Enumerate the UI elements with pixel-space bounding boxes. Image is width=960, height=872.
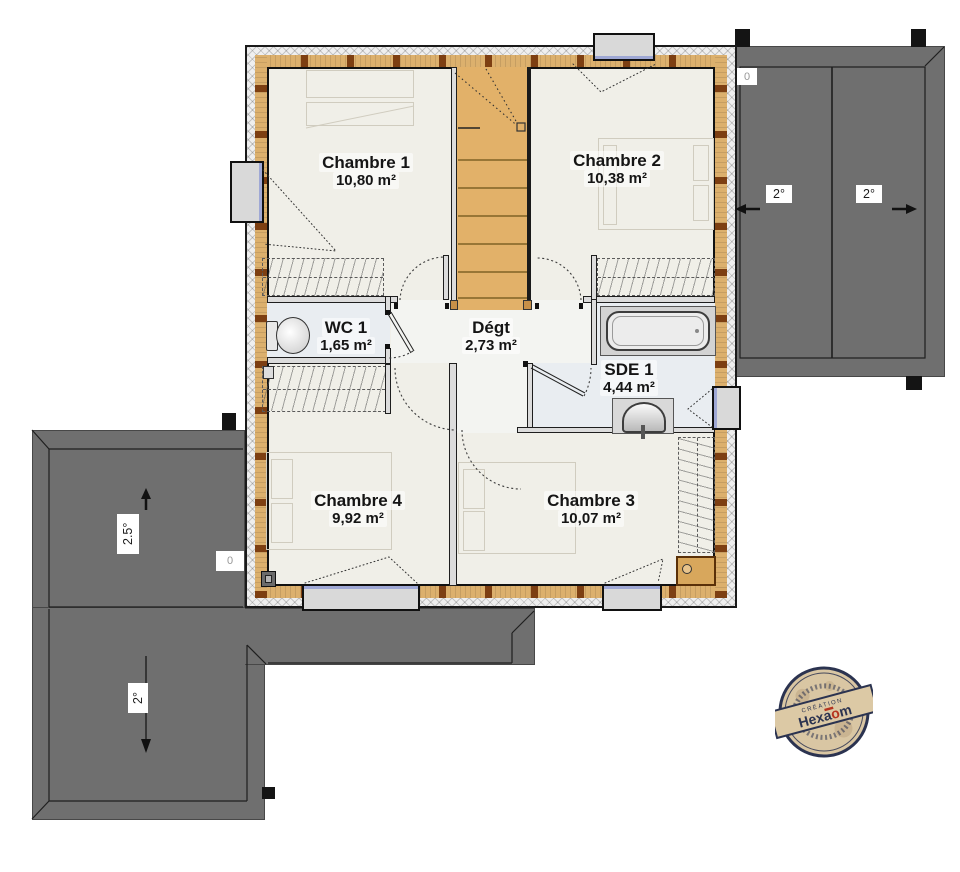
staircase (457, 67, 527, 310)
roof-slope-label: 2° (128, 683, 148, 713)
partition-wall (527, 363, 533, 431)
wall-wood-band-top (255, 55, 727, 67)
door-hinge (385, 310, 390, 315)
chimney-icon (906, 376, 922, 390)
floor-plan-canvas: 2° 2° 2.5° 2° 0 0 (0, 0, 960, 872)
partition-wall (591, 296, 597, 365)
closet-chambre2 (597, 258, 715, 296)
window (302, 584, 420, 611)
partition-wall (385, 364, 391, 414)
window (230, 161, 264, 223)
stair-post (523, 300, 532, 310)
roof-slope-label: 2° (766, 185, 792, 203)
flue-box (676, 556, 716, 586)
roof-left-lower (32, 607, 265, 820)
room-label-sde1: SDE 14,44 m² (579, 358, 679, 398)
room-label-chambre3: Chambre 310,07 m² (511, 486, 671, 532)
roof-slope-label: 2° (856, 185, 882, 203)
door-hinge (445, 303, 449, 309)
window (712, 386, 741, 430)
stair-post (450, 300, 458, 310)
partition-wall (267, 357, 391, 364)
partition-wall (591, 255, 597, 300)
partition-wall (583, 296, 715, 303)
wall-fixture-icon (263, 366, 274, 379)
chimney-icon (262, 787, 275, 799)
chimney-icon (735, 29, 750, 47)
chimney-icon (222, 413, 236, 430)
roof-top-right (735, 46, 945, 377)
degagement-floor (457, 363, 527, 433)
roof-slope-label: 2.5° (117, 514, 139, 554)
partition-wall (443, 255, 449, 300)
room-label-chambre1: Chambre 110,80 m² (286, 148, 446, 194)
roof-band-bottom (245, 608, 535, 665)
door-hinge (535, 303, 539, 309)
room-label-wc1: WC 11,65 m² (296, 316, 396, 356)
door-hinge (394, 303, 398, 309)
door-hinge (523, 361, 528, 367)
shelf-outline (306, 102, 414, 126)
shelf-outline (306, 70, 414, 98)
closet-chambre4 (262, 366, 386, 412)
room-label-chambre4: Chambre 49,92 m² (278, 486, 438, 532)
partition-wall (267, 296, 398, 303)
closet-chambre3 (678, 437, 715, 553)
bathtub-icon (600, 306, 716, 356)
builder-stamp: CRÉATION Hexaom (775, 663, 873, 761)
door-hinge (579, 303, 583, 309)
room-label-chambre2: Chambre 210,38 m² (537, 146, 697, 192)
sink-icon (612, 398, 674, 434)
window (593, 33, 655, 61)
level-marker: 0 (216, 551, 244, 571)
closet-chambre1 (262, 258, 384, 296)
partition-wall (449, 363, 457, 586)
level-marker: 0 (737, 68, 757, 85)
room-label-degagement: Dégt2,73 m² (441, 316, 541, 356)
wall-wood-band-right (715, 55, 727, 598)
window (602, 584, 662, 611)
duct-box (261, 571, 276, 587)
chimney-icon (911, 29, 926, 47)
stair-wall-left (451, 67, 457, 310)
stair-wall-right (527, 67, 531, 310)
